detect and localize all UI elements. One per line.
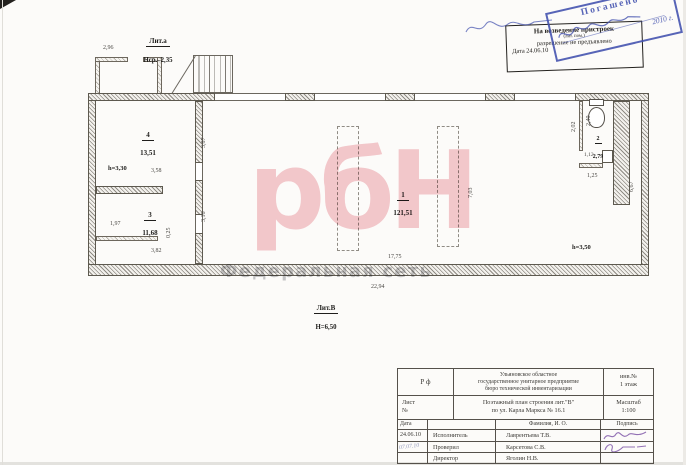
tb-name-header-label: Фамилия, И. О. bbox=[529, 421, 567, 427]
tb-date-header: Дата bbox=[398, 420, 428, 430]
tb-name-header: Фамилия, И. О. bbox=[496, 420, 601, 430]
tb-row-date: 24.06.10 bbox=[398, 430, 428, 442]
tb-row-date bbox=[398, 453, 428, 464]
room-label-4: 4 13,51 bbox=[128, 124, 168, 161]
dim-wc-depth: 2,40 bbox=[586, 116, 592, 127]
interior-wall-room4-room3 bbox=[96, 186, 163, 194]
dim-room4-depth: 3,87 bbox=[201, 138, 207, 149]
annex-label: Лит.а Нср.–2,35 bbox=[130, 29, 186, 67]
annex-lit: Лит.а bbox=[146, 37, 169, 47]
dim-right-side: 6,67 bbox=[629, 182, 635, 193]
stamp-handwriting-flourish bbox=[462, 12, 557, 40]
room-label-1: 1 121,51 bbox=[383, 184, 423, 221]
porch-wall-left bbox=[95, 57, 100, 95]
tb-title-line1: Поэтажный план строения лит."В" bbox=[454, 399, 603, 407]
wall-top-segment bbox=[485, 93, 515, 101]
tb-name-value: Карсетова С.В. bbox=[506, 444, 546, 451]
interior-wall-vertical bbox=[195, 180, 203, 215]
tb-org-cell: Ульяновское областное государственное ун… bbox=[454, 369, 604, 396]
tb-role-header bbox=[428, 420, 496, 430]
wall-top-segment bbox=[575, 93, 649, 101]
interior-wall-vertical bbox=[195, 233, 203, 264]
tb-sign-header: Подпись bbox=[601, 420, 654, 430]
scanned-floor-plan-page: Лит.а Нср.–2,35 4 13,51 h=3,30 3 11,68 1… bbox=[0, 0, 686, 465]
dim-room3-left: 1,97 bbox=[110, 221, 121, 227]
dim-room1-depth: 7,03 bbox=[468, 188, 474, 199]
tb-rf: Р ф bbox=[420, 378, 430, 386]
stairs bbox=[193, 55, 233, 93]
room-area: 2,79 bbox=[593, 154, 604, 160]
wall-left bbox=[88, 93, 96, 276]
tb-sheet-no: № bbox=[402, 407, 453, 415]
room-number: 4 bbox=[142, 131, 154, 141]
wall-top-segment bbox=[88, 93, 215, 101]
tb-role-value: Директор bbox=[433, 455, 458, 462]
dim-room4-width: 3,58 bbox=[151, 168, 162, 174]
room-number: 2 bbox=[595, 136, 602, 144]
building-height: Н=6,50 bbox=[315, 324, 336, 331]
tb-row-name: Карсетова С.В. bbox=[496, 442, 601, 453]
dim-total-width: 22,94 bbox=[371, 284, 385, 290]
interior-wall-vertical bbox=[195, 101, 203, 163]
signature-mark bbox=[601, 442, 649, 453]
tb-date-header-label: Дата bbox=[400, 421, 412, 427]
dim-wc-door: 1,12 bbox=[584, 153, 594, 159]
dim-wc-left: 2,02 bbox=[571, 122, 577, 133]
tb-role-value: Проверил bbox=[433, 444, 459, 451]
wall-top-segment bbox=[285, 93, 315, 101]
room1-height: h=3,50 bbox=[572, 244, 591, 251]
dashed-structure bbox=[437, 126, 459, 247]
tb-name-value: Лаврентьева Т.В. bbox=[506, 432, 551, 439]
tb-sheet-label: Лист bbox=[402, 399, 453, 407]
tb-row-name: Лаврентьева Т.В. bbox=[496, 430, 601, 442]
tb-date-handwritten: 07.07.10 bbox=[398, 442, 420, 452]
signature-mark bbox=[601, 430, 649, 442]
tb-role-value: Исполнитель bbox=[433, 432, 468, 439]
dim-room3-depth: 3,16 bbox=[201, 212, 207, 223]
porch-wall-top-left bbox=[95, 57, 128, 62]
tb-inv-cell: инв.№ 1 этаж bbox=[604, 369, 654, 396]
tb-scale-cell: Масштаб 1:100 bbox=[604, 396, 654, 420]
room-label-3: 3 11,68 bbox=[130, 204, 170, 241]
dim-room3-stub: 0,25 bbox=[166, 228, 172, 239]
building-lit: Лит.В bbox=[314, 304, 339, 314]
tb-date-value: 24.06.10 bbox=[400, 432, 421, 438]
window-opening bbox=[315, 93, 385, 101]
tb-inv-label: инв.№ bbox=[604, 373, 653, 381]
annex-height: Нср.–2,35 bbox=[143, 57, 172, 64]
tb-sign-header-label: Подпись bbox=[616, 421, 637, 427]
tb-rf-cell: Р ф bbox=[398, 369, 454, 396]
room-number: 3 bbox=[144, 211, 156, 221]
tb-title-line2: по ул. Карла Маркса № 16.1 bbox=[454, 407, 603, 415]
tb-org-line1: Ульяновское областное bbox=[454, 372, 603, 379]
tb-row-role: Директор bbox=[428, 453, 496, 464]
dim-room1-inner: 17,75 bbox=[388, 254, 402, 260]
wall-right bbox=[641, 93, 649, 276]
wall-bottom bbox=[88, 264, 649, 276]
room-number: 1 bbox=[397, 191, 409, 201]
wc-wall-left bbox=[579, 101, 583, 151]
scan-edge-left bbox=[2, 0, 3, 465]
toilet-cistern bbox=[589, 99, 604, 106]
tb-inv-value: 1 этаж bbox=[604, 381, 653, 389]
dim-wc-width: 1,25 bbox=[587, 173, 598, 179]
wall-top-segment bbox=[385, 93, 415, 101]
window-opening bbox=[515, 93, 575, 101]
tb-scale-value: 1:100 bbox=[604, 407, 653, 415]
room-area: 11,68 bbox=[142, 229, 157, 237]
tb-row-date: 07.07.10 bbox=[398, 442, 428, 453]
dashed-structure bbox=[337, 126, 359, 251]
wall-pier bbox=[613, 101, 630, 205]
room4-height: h=3,30 bbox=[108, 165, 127, 172]
tb-scale-label: Масштаб bbox=[604, 399, 653, 407]
window-opening bbox=[215, 93, 285, 101]
tb-org-line3: бюро технической инвентаризации bbox=[454, 386, 603, 393]
tb-name-value: Яголин Н.В. bbox=[506, 455, 538, 462]
building-label: Лит.В Н=6,50 bbox=[300, 296, 352, 334]
tb-row-signature bbox=[601, 442, 654, 453]
room-area: 13,51 bbox=[140, 149, 156, 157]
tb-row-signature bbox=[601, 453, 654, 464]
tb-row-name: Яголин Н.В. bbox=[496, 453, 601, 464]
tb-row-signature bbox=[601, 430, 654, 442]
title-block: Р ф Ульяновское областное государственно… bbox=[397, 368, 654, 464]
tb-title-cell: Поэтажный план строения лит."В" по ул. К… bbox=[454, 396, 604, 420]
interior-window bbox=[195, 163, 203, 180]
tb-sheet-cell: Лист № bbox=[398, 396, 454, 420]
tb-row-role: Исполнитель bbox=[428, 430, 496, 442]
dim-porch-width: 2,96 bbox=[103, 45, 114, 51]
window-opening bbox=[415, 93, 485, 101]
room-area: 121,51 bbox=[393, 209, 412, 217]
tb-row-role: Проверил bbox=[428, 442, 496, 453]
dim-room3-width: 3,82 bbox=[151, 248, 162, 254]
